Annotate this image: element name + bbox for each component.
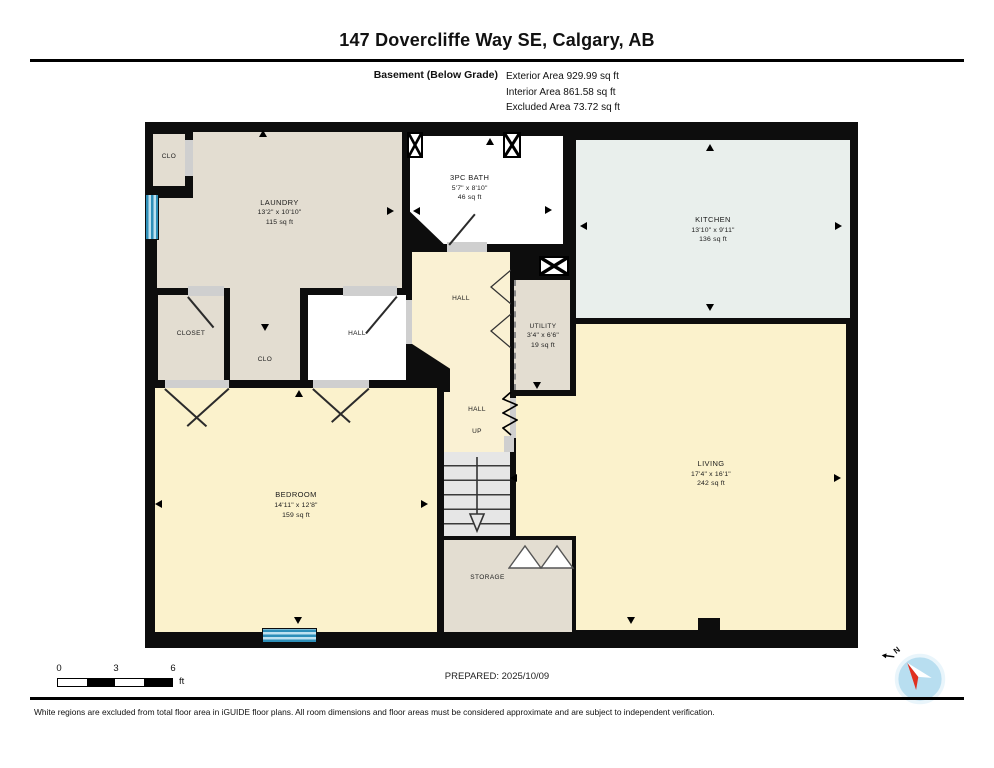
direction-arrow-icon: [486, 138, 494, 145]
disclaimer-text: White regions are excluded from total fl…: [34, 707, 974, 717]
door-opening: [185, 140, 193, 176]
room-hall-west: HALL: [308, 295, 406, 380]
direction-arrow-icon: [706, 304, 714, 311]
room-living: LIVING 17'4" x 16'1" 242 sq ft: [576, 324, 846, 630]
direction-arrow-icon: [261, 324, 269, 331]
window: [145, 194, 159, 240]
footer-divider: [30, 697, 964, 700]
page-title: 147 Dovercliffe Way SE, Calgary, AB: [0, 30, 994, 51]
floorplan-page: 147 Dovercliffe Way SE, Calgary, AB Base…: [0, 0, 994, 768]
door-opening: [165, 380, 229, 388]
room-clo-lower: CLO: [230, 346, 300, 380]
direction-arrow-icon: [387, 207, 394, 215]
door-opening: [188, 286, 224, 296]
direction-arrow-icon: [834, 474, 841, 482]
room-utility: UTILITY 3'4" x 6'6" 19 sq ft: [514, 280, 570, 390]
direction-arrow-icon: [421, 500, 428, 508]
interior-area: Interior Area 861.58 sq ft: [506, 85, 620, 101]
direction-arrow-icon: [545, 206, 552, 214]
prepared-date: PREPARED: 2025/10/09: [0, 671, 994, 682]
hatched-post: [503, 132, 521, 158]
room-label: CLO: [153, 152, 185, 161]
wall-post: [698, 618, 720, 632]
stair-break-symbol: [502, 392, 518, 436]
room-kitchen: KITCHEN 13'10" x 9'11" 136 sq ft: [576, 140, 850, 318]
room-label: LAUNDRY 13'2" x 10'10" 115 sq ft: [157, 198, 402, 229]
direction-arrow-icon: [580, 222, 587, 230]
room-label: CLOSET: [158, 329, 224, 338]
hatched-post: [539, 256, 569, 276]
direction-arrow-icon: [295, 390, 303, 397]
room-label: BEDROOM 14'11" x 12'8" 159 sq ft: [155, 490, 437, 521]
door-opening: [313, 380, 369, 388]
direction-arrow-icon: [413, 207, 420, 215]
staircase: [444, 452, 510, 536]
room-closet: CLOSET: [158, 295, 224, 380]
door-opening: [343, 286, 397, 296]
direction-arrow-icon: [155, 500, 162, 508]
hatched-post: [407, 132, 423, 158]
direction-arrow-icon: [835, 222, 842, 230]
direction-arrow-icon: [533, 382, 541, 389]
up-label: UP: [444, 427, 510, 436]
room-clo-upper: CLO: [153, 134, 185, 186]
direction-arrow-icon: [259, 130, 267, 137]
bifold-door-icon: [508, 542, 576, 570]
room-label: 3PC BATH 5'7" x 8'10" 46 sq ft: [410, 173, 529, 204]
room-bedroom: BEDROOM 14'11" x 12'8" 159 sq ft: [155, 388, 437, 632]
direction-arrow-icon: [510, 474, 517, 482]
floor-label: Basement (Below Grade): [374, 69, 498, 81]
exterior-area: Exterior Area 929.99 sq ft: [506, 69, 620, 85]
folding-door-icon: [487, 268, 511, 352]
room-label: HALL: [444, 405, 510, 414]
room-label: HALL: [308, 329, 406, 338]
header-divider: [30, 59, 964, 62]
room-label: UTILITY 3'4" x 6'6" 19 sq ft: [516, 322, 570, 351]
plan-canvas: LAUNDRY 13'2" x 10'10" 115 sq ft CLO 3PC…: [145, 122, 858, 648]
room-laundry-annex: [230, 288, 300, 346]
room-label: LIVING 17'4" x 16'1" 242 sq ft: [576, 459, 846, 490]
door-opening: [406, 300, 412, 344]
direction-arrow-icon: [706, 144, 714, 151]
room-laundry: LAUNDRY 13'2" x 10'10" 115 sq ft: [157, 132, 402, 288]
room-label: KITCHEN 13'10" x 9'11" 136 sq ft: [576, 215, 850, 246]
room-label: CLO: [230, 355, 300, 364]
excluded-area: Excluded Area 73.72 sq ft: [506, 100, 620, 116]
room-hall-stairs: HALL UP: [444, 392, 510, 452]
door-opening: [447, 242, 487, 252]
direction-arrow-icon: [627, 617, 635, 624]
door-opening: [504, 436, 514, 452]
compass-icon: [893, 652, 947, 711]
room-label: STORAGE: [447, 573, 529, 582]
area-summary: Exterior Area 929.99 sq ft Interior Area…: [506, 69, 620, 116]
stair-direction-arrow-icon: [467, 452, 487, 536]
window: [262, 628, 317, 643]
room-bath: 3PC BATH 5'7" x 8'10" 46 sq ft: [410, 136, 563, 244]
room-living-arm: [516, 396, 576, 536]
direction-arrow-icon: [294, 617, 302, 624]
